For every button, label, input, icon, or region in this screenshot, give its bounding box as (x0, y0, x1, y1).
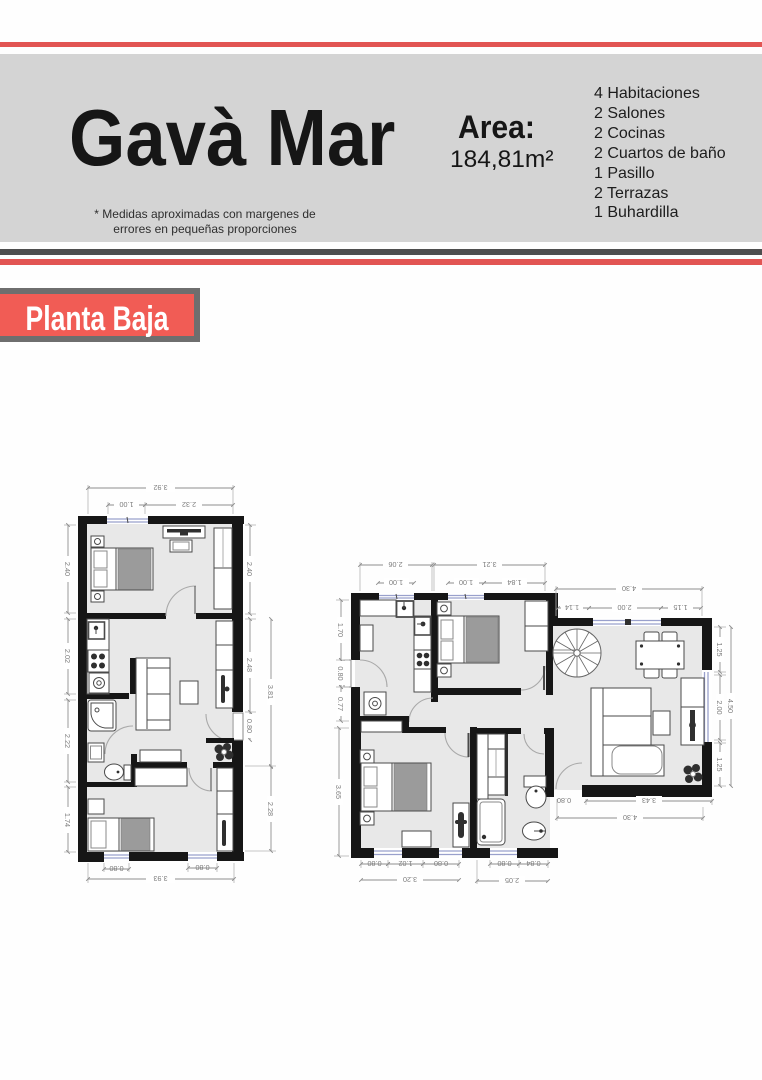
svg-text:3.65: 3.65 (334, 785, 343, 799)
svg-text:0.80: 0.80 (195, 863, 209, 872)
svg-text:0.80: 0.80 (245, 719, 254, 733)
svg-text:0.80: 0.80 (109, 864, 123, 873)
svg-text:1.84: 1.84 (507, 578, 521, 587)
svg-text:3.81: 3.81 (266, 685, 275, 699)
svg-text:2.40: 2.40 (63, 562, 72, 576)
svg-text:1.15: 1.15 (673, 603, 687, 612)
svg-text:0.84: 0.84 (526, 859, 540, 868)
svg-text:2.40: 2.40 (245, 562, 254, 576)
svg-text:2.28: 2.28 (266, 802, 275, 816)
svg-text:1.25: 1.25 (715, 642, 724, 656)
svg-text:2.22: 2.22 (63, 734, 72, 748)
svg-text:1.00: 1.00 (459, 578, 473, 587)
svg-text:1.00: 1.00 (389, 578, 403, 587)
svg-text:4.30: 4.30 (622, 584, 636, 593)
svg-text:0.80: 0.80 (367, 859, 381, 868)
svg-text:1.70: 1.70 (336, 623, 345, 637)
svg-text:2.05: 2.05 (505, 876, 519, 885)
svg-text:0.77: 0.77 (336, 697, 345, 711)
svg-text:2.00: 2.00 (715, 700, 724, 714)
svg-text:0.80: 0.80 (557, 796, 571, 805)
svg-text:4.50: 4.50 (726, 699, 735, 713)
svg-text:1.02: 1.02 (398, 859, 412, 868)
svg-text:1.25: 1.25 (715, 757, 724, 771)
svg-text:1.74: 1.74 (63, 813, 72, 827)
svg-text:0.80: 0.80 (336, 666, 345, 680)
svg-text:2.32: 2.32 (182, 500, 196, 509)
svg-text:3.21: 3.21 (482, 560, 496, 569)
svg-text:2.02: 2.02 (63, 649, 72, 663)
svg-text:2.48: 2.48 (245, 658, 254, 672)
svg-text:3.20: 3.20 (403, 875, 417, 884)
svg-text:2.00: 2.00 (617, 603, 631, 612)
svg-text:1.14: 1.14 (565, 603, 579, 612)
svg-text:0.80: 0.80 (434, 859, 448, 868)
svg-text:3.43: 3.43 (642, 796, 656, 805)
svg-text:4.30: 4.30 (623, 813, 637, 822)
svg-text:3.93: 3.93 (153, 874, 167, 883)
svg-text:1.00: 1.00 (119, 500, 133, 509)
svg-text:2.06: 2.06 (388, 560, 402, 569)
svg-text:0.80: 0.80 (497, 859, 511, 868)
svg-text:3.92: 3.92 (153, 483, 167, 492)
